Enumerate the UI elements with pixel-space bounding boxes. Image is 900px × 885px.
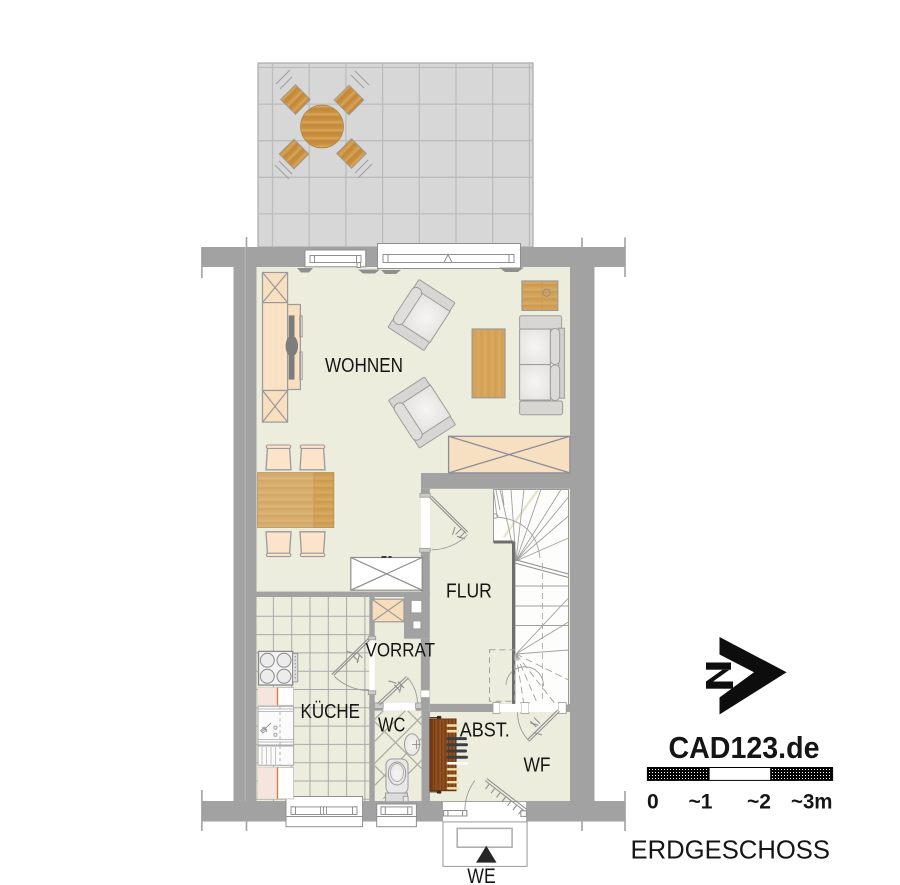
svg-text:CAD123.de: CAD123.de: [669, 730, 820, 765]
svg-text:ABST.: ABST.: [460, 720, 510, 742]
svg-text:KÜCHE: KÜCHE: [301, 701, 361, 723]
svg-text:FLUR: FLUR: [446, 581, 492, 603]
svg-text:~2: ~2: [747, 791, 771, 814]
svg-text:VORRAT: VORRAT: [366, 641, 436, 662]
svg-text:WC: WC: [378, 715, 405, 737]
svg-text:~3m: ~3m: [791, 791, 833, 814]
svg-text:ERDGESCHOSS: ERDGESCHOSS: [631, 837, 831, 865]
svg-text:~1: ~1: [689, 791, 713, 814]
svg-text:0: 0: [647, 791, 659, 814]
svg-text:WOHNEN: WOHNEN: [325, 355, 403, 377]
svg-text:WE: WE: [467, 865, 495, 885]
svg-text:WF: WF: [524, 755, 551, 777]
